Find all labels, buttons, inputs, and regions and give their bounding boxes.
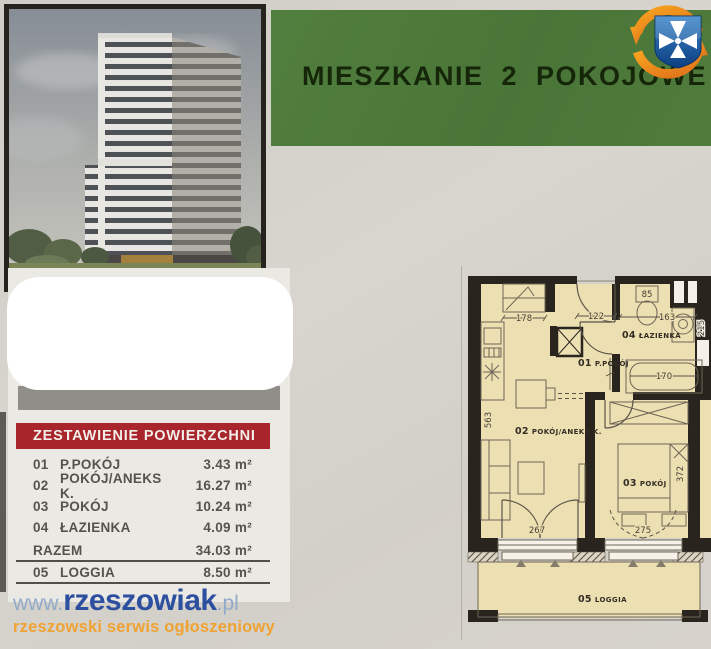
total-label: RAZEM [33, 543, 166, 558]
table-row: 03 POKÓJ 10.24 m² [16, 496, 270, 517]
table-rows: 01 P.POKÓJ 3.43 m² 02 POKÓJ/ANEKS K. 16.… [16, 454, 270, 584]
table-row: 02 POKÓJ/ANEKS K. 16.27 m² [16, 475, 270, 496]
redaction-blob [7, 277, 293, 390]
row-name: POKÓJ/ANEKS K. [60, 471, 166, 501]
dimension-label: 275 [635, 526, 651, 536]
url-main: rzeszowiak [63, 584, 216, 618]
dimension-label: 85 [642, 290, 653, 300]
area-summary-table: ZESTAWIENIE POWIERZCHNI 01 P.POKÓJ 3.43 … [16, 423, 270, 584]
url-prefix: www. [13, 592, 63, 616]
rzeszow-crest-badge [628, 0, 710, 86]
table-header: ZESTAWIENIE POWIERZCHNI [16, 423, 270, 449]
dimension-label: 215 [697, 320, 707, 336]
room-label: 03POKÓJ [623, 478, 667, 489]
row-number: 01 [16, 457, 60, 472]
table-loggia-row: 05 LOGGIA 8.50 m² [16, 562, 270, 582]
building-photo [4, 4, 266, 292]
row-area: 8.50 m² [166, 565, 270, 580]
room-label: 01P.POKÓJ [578, 358, 629, 369]
floor-plan: 178 122 85 163 215 170 563 267 275 372 0… [460, 262, 711, 649]
row-area: 4.09 m² [166, 520, 270, 535]
dimension-label: 563 [484, 412, 494, 428]
table-total-row: RAZEM 34.03 m² [16, 540, 270, 560]
row-name: POKÓJ [60, 499, 166, 514]
watermark-tagline: rzeszowski serwis ogłoszeniowy [13, 618, 283, 637]
url-suffix: .pl [217, 592, 239, 616]
dimension-label: 170 [656, 372, 672, 382]
tower [85, 33, 243, 265]
row-number: 02 [16, 478, 60, 493]
watermark-url: www.rzeszowiak.pl [13, 584, 283, 618]
row-name: ŁAZIENKA [60, 520, 166, 535]
room-label: 05LOGGIA [578, 594, 627, 605]
row-number: 05 [16, 565, 60, 580]
room-label: 02POKÓJ/ANEKS K. [515, 426, 602, 437]
watermark: www.rzeszowiak.pl rzeszowski serwis ogło… [13, 584, 283, 637]
row-number: 03 [16, 499, 60, 514]
total-area: 34.03 m² [166, 543, 270, 558]
dimension-label: 267 [529, 526, 545, 536]
dimension-label: 163 [659, 313, 675, 323]
table-row: 04 ŁAZIENKA 4.09 m² [16, 517, 270, 538]
row-area: 10.24 m² [166, 499, 270, 514]
shield-cross-icon [655, 16, 701, 68]
page-edge-shadow [0, 412, 6, 592]
flyer-page: ZESTAWIENIE POWIERZCHNI 01 P.POKÓJ 3.43 … [0, 0, 711, 649]
dimension-label: 122 [588, 312, 604, 322]
dimension-label: 372 [676, 466, 686, 482]
row-area: 16.27 m² [166, 478, 270, 493]
dimension-label: 178 [516, 314, 532, 324]
room-label: 04ŁAZIENKA [622, 330, 681, 341]
row-name: LOGGIA [60, 565, 166, 580]
building-illustration [9, 9, 261, 287]
row-number: 04 [16, 520, 60, 535]
row-area: 3.43 m² [166, 457, 270, 472]
